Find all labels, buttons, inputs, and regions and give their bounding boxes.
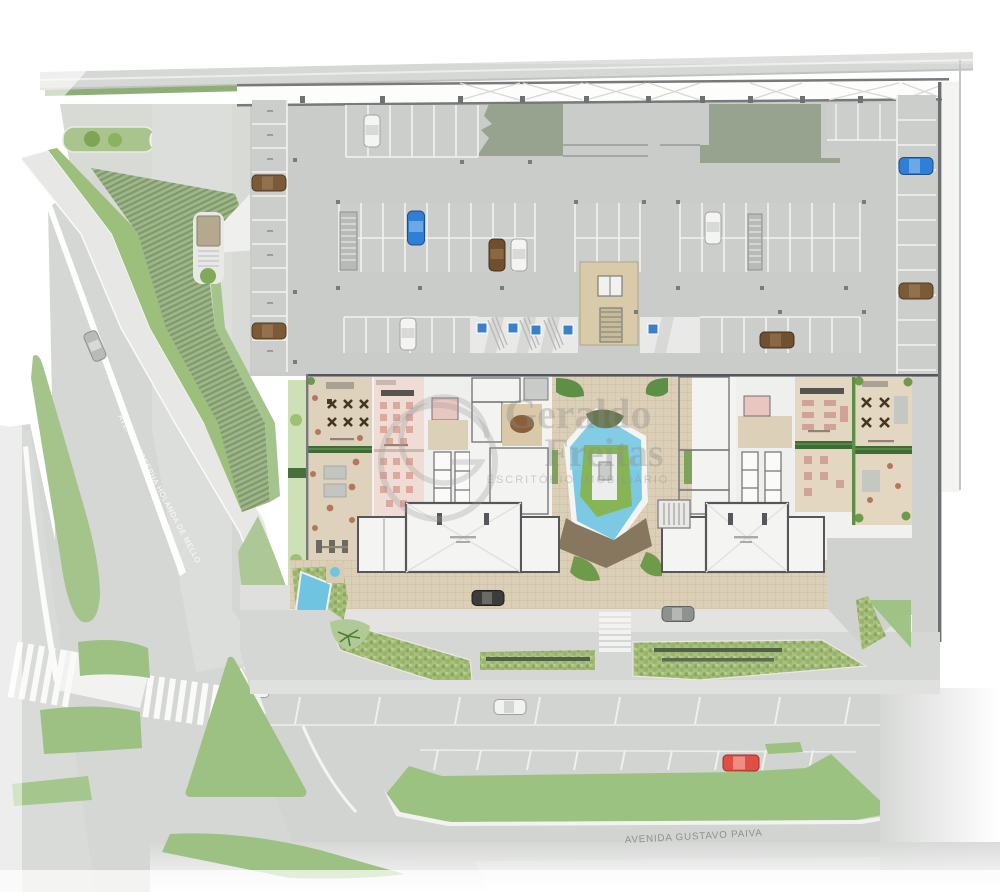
svg-text:ESCRITÓRIO IMOBILIÁRIO: ESCRITÓRIO IMOBILIÁRIO [487,473,670,486]
svg-text:Freitas: Freitas [544,430,663,475]
